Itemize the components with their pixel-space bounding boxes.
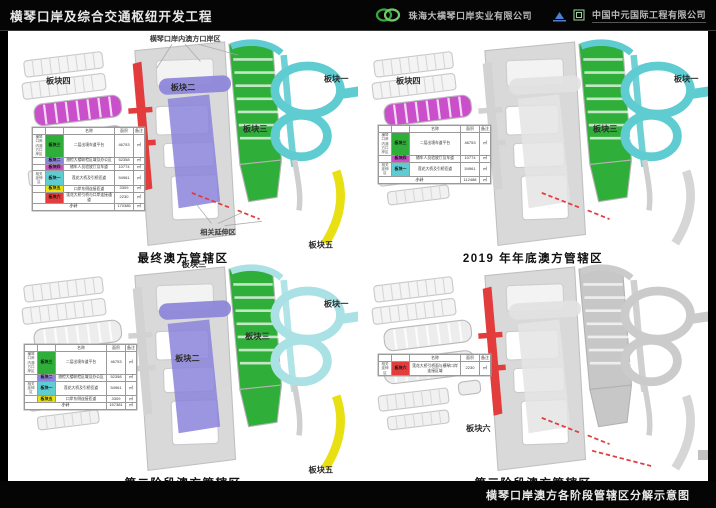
map-final: 横琴口岸内澳方口岸区 板块四 板块二 板块三 板块一 板块六 相关延伸区 板块五… (8, 31, 358, 250)
content-area: 横琴口岸内澳方口岸区 板块四 板块二 板块三 板块一 板块六 相关延伸区 板块五… (8, 31, 708, 481)
legend-final: 名称面积备注横琴口岸内澳方口岸区板块三二层出境车道平台46753㎡板块二旅检大楼… (32, 127, 145, 211)
map-label-block2: 板块二 (171, 82, 196, 92)
page-title: 横琴口岸及综合交通枢纽开发工程 (10, 6, 213, 25)
map-label-block3: 板块三 (593, 124, 618, 134)
map-label-block4: 板块四 (46, 76, 71, 86)
footer-bar: 横琴口岸澳方各阶段管辖区分解示意图 (0, 481, 716, 508)
legend-table: 名称面积备注相关延伸区板块六莲花大桥引桥面与横琴口岸连接区域2230㎡ (378, 354, 491, 376)
map-label-block1: 板块一 (324, 73, 349, 83)
map-label-block3: 板块三 (243, 124, 268, 134)
footer-caption: 横琴口岸澳方各阶段管辖区分解示意图 (486, 487, 690, 503)
map-label-block6: 板块六 (466, 423, 491, 433)
header-logos: 珠海大横琴口岸实业有限公司 中国中元国际工程有限公司 (375, 8, 706, 23)
map-label-block1: 板块一 (324, 298, 349, 308)
legend-stage3: 名称面积备注相关延伸区板块六莲花大桥引桥面与横琴口岸连接区域2230㎡ (378, 354, 491, 376)
legend-2019: 名称面积备注横琴口岸内澳方口岸区板块三二层出境车道平台46753㎡板块四随车人员… (378, 125, 491, 184)
map-stage2: 板块三 板块三 板块二 板块一 板块五 名称面积备注横琴口岸内澳方口岸区板块三二… (8, 256, 358, 475)
legend-table: 名称面积备注横琴口岸内澳方口岸区板块三二层出境车道平台46753㎡板块二旅检大楼… (24, 344, 137, 410)
map-label-block4: 板块四 (396, 76, 421, 86)
map-2019: 板块四 板块三 板块一 名称面积备注横琴口岸内澳方口岸区板块三二层出境车道平台4… (358, 31, 708, 250)
legend-table: 名称面积备注横琴口岸内澳方口岸区板块三二层出境车道平台46753㎡板块二旅检大楼… (32, 127, 145, 211)
annotation-port-area: 横琴口岸内澳方口岸区 (150, 34, 221, 43)
company-name-1: 珠海大横琴口岸实业有限公司 (408, 9, 532, 22)
legend-table: 名称面积备注横琴口岸内澳方口岸区板块三二层出境车道平台46753㎡板块四随车人员… (378, 125, 491, 184)
company-name-2: 中国中元国际工程有限公司 (592, 8, 706, 23)
map-label-block2: 板块二 (175, 353, 200, 363)
quadrant-stage2: 板块三 板块三 板块二 板块一 板块五 名称面积备注横琴口岸内澳方口岸区板块三二… (8, 256, 358, 481)
map-label-block5: 板块五 (309, 465, 334, 475)
map-label-block5: 板块五 (309, 240, 334, 250)
quadrant-2019: 板块四 板块三 板块一 名称面积备注横琴口岸内澳方口岸区板块三二层出境车道平台4… (358, 31, 708, 256)
map-stage3: 板块六 名称面积备注相关延伸区板块六莲花大桥引桥面与横琴口岸连接区域2230㎡ (358, 256, 708, 475)
annotation-extension: 相关延伸区 (200, 227, 235, 236)
company1-logo-icon (375, 8, 401, 22)
map-label-block1: 板块一 (674, 73, 699, 83)
header-bar: 横琴口岸及综合交通枢纽开发工程 珠海大横琴口岸实业有限公司 中国中元国际工程有限… (0, 0, 716, 31)
company2-badge-icon (573, 9, 585, 21)
red-dash-annotation (592, 451, 651, 466)
resize-artifact (698, 450, 708, 460)
quadrant-final: 横琴口岸内澳方口岸区 板块四 板块二 板块三 板块一 板块六 相关延伸区 板块五… (8, 31, 358, 256)
slide: 横琴口岸及综合交通枢纽开发工程 珠海大横琴口岸实业有限公司 中国中元国际工程有限… (0, 0, 716, 508)
legend-stage2: 名称面积备注横琴口岸内澳方口岸区板块三二层出境车道平台46753㎡板块二旅检大楼… (24, 344, 137, 410)
company2-logo-icon (553, 9, 566, 22)
quadrant-stage3: 板块六 名称面积备注相关延伸区板块六莲花大桥引桥面与横琴口岸连接区域2230㎡ … (358, 256, 708, 481)
map-label-block3-top: 板块三 (182, 259, 207, 269)
map-label-block3: 板块三 (245, 331, 270, 341)
